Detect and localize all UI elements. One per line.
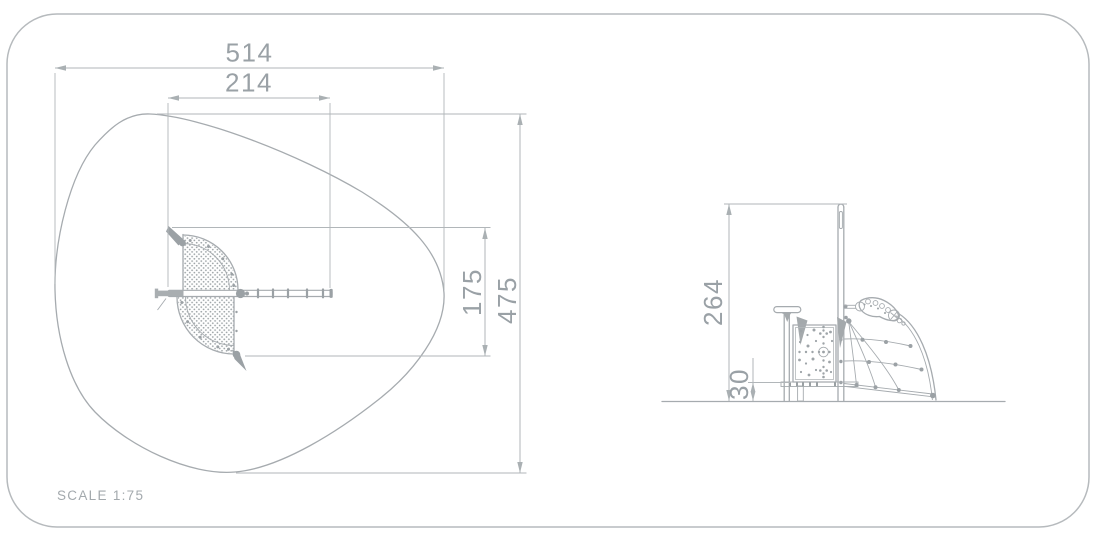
dim-platform-depth-value: 175 [457, 268, 487, 316]
mast [838, 204, 848, 401]
deck-edge [781, 382, 858, 387]
elevation-view: 264 30 [662, 204, 1005, 402]
dim-overall-height-value: 264 [698, 278, 728, 326]
dim-platform-width-value: 214 [225, 68, 273, 98]
drawing-canvas: 514 214 175 475 [0, 0, 1096, 540]
dim-deck-height-value: 30 [724, 368, 754, 400]
sheet-border [7, 14, 1089, 527]
caterpillar-plan-bottom [232, 350, 247, 372]
dim-overall-height: 264 [698, 204, 847, 401]
drawing-sheet: 514 214 175 475 [0, 0, 1096, 540]
plan-view: 514 214 175 475 [55, 38, 527, 474]
climbing-net [844, 314, 936, 401]
steering-wheel [774, 307, 801, 322]
net-beam-plan [168, 288, 333, 298]
scale-label: SCALE 1:75 [57, 488, 144, 503]
dim-total-width-value: 514 [226, 38, 274, 68]
dim-deck-height: 30 [724, 358, 791, 401]
dim-total-depth-value: 475 [492, 276, 522, 324]
caterpillar-toy [844, 298, 905, 326]
